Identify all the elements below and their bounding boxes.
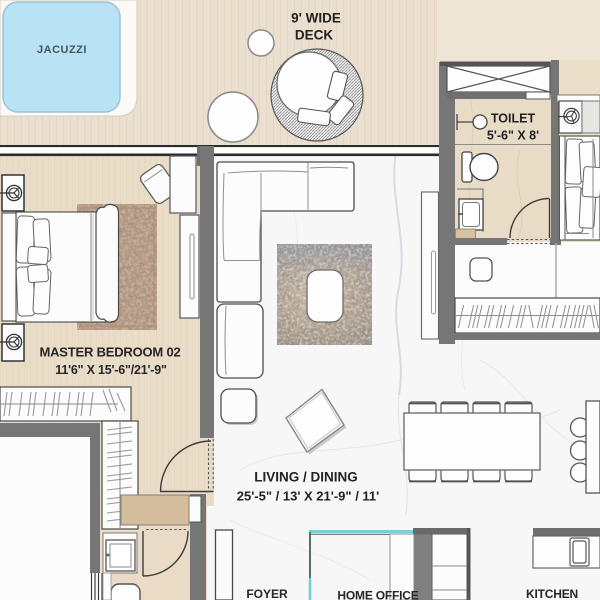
svg-text:JACUZZI: JACUZZI	[37, 44, 87, 56]
svg-text:TOILET: TOILET	[491, 112, 536, 126]
svg-text:MASTER BEDROOM 02: MASTER BEDROOM 02	[39, 345, 180, 360]
svg-text:HOME OFFICE: HOME OFFICE	[337, 589, 418, 600]
svg-text:9' WIDE: 9' WIDE	[291, 11, 341, 26]
svg-text:25'-5" / 13' X 21'-9" / 11': 25'-5" / 13' X 21'-9" / 11'	[237, 489, 380, 504]
svg-text:KITCHEN: KITCHEN	[526, 587, 578, 600]
svg-text:FOYER: FOYER	[246, 587, 288, 600]
svg-text:11'6" X 15'-6"/21'-9": 11'6" X 15'-6"/21'-9"	[55, 363, 167, 377]
svg-text:DECK: DECK	[295, 28, 334, 43]
svg-text:5'-6" X 8': 5'-6" X 8'	[487, 129, 539, 143]
svg-text:LIVING / DINING: LIVING / DINING	[254, 470, 358, 485]
